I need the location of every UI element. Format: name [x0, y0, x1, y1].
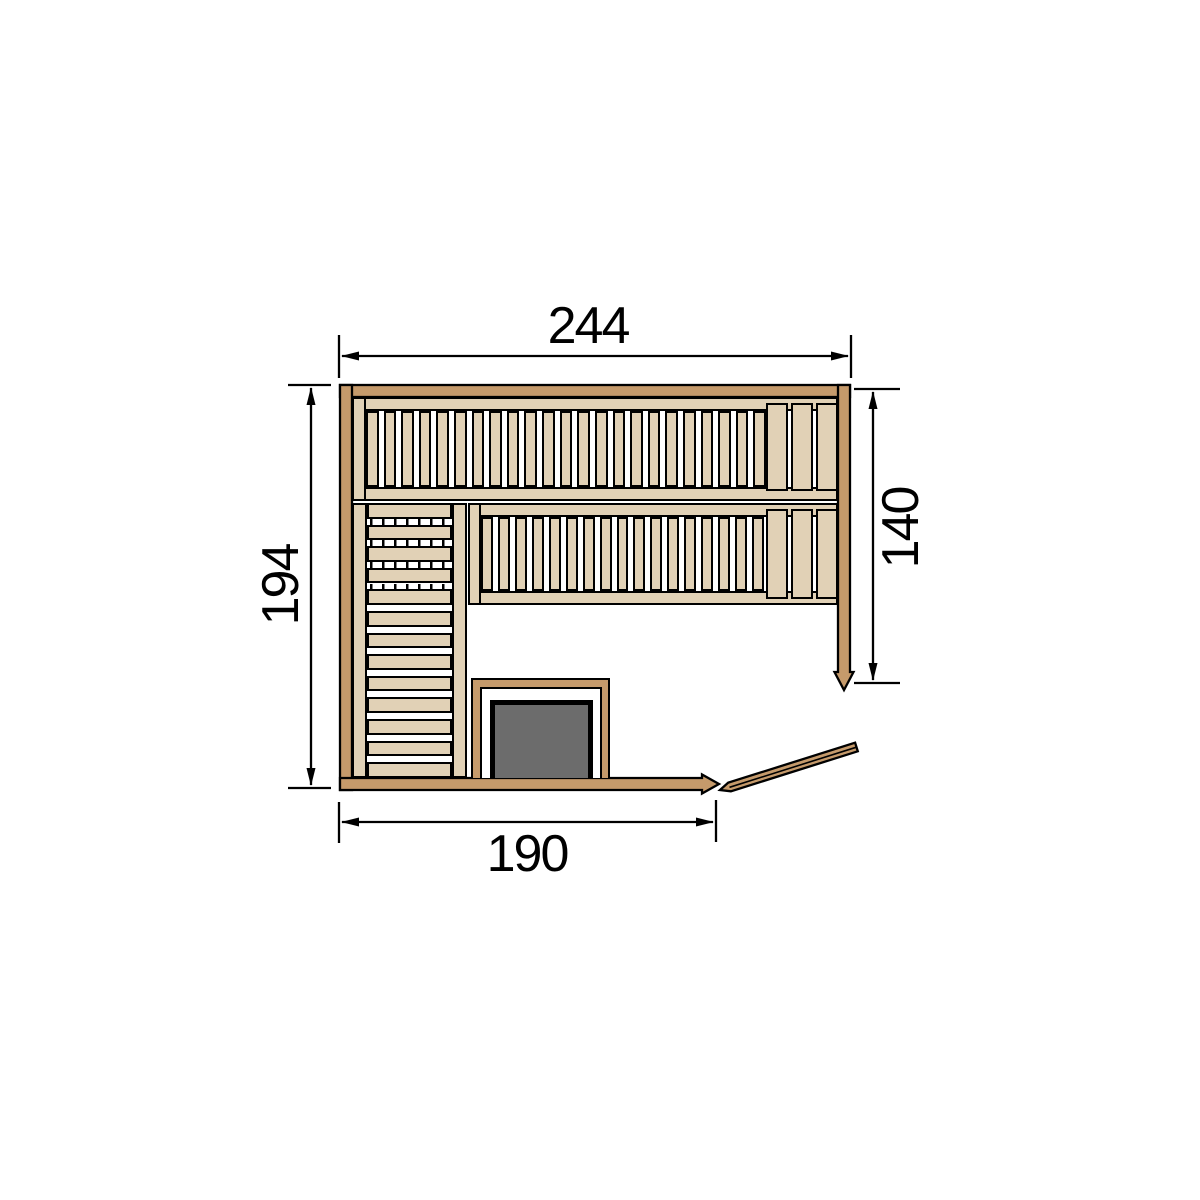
bench-slat: [532, 517, 544, 591]
bench-slat: [549, 517, 561, 591]
dashed-slat-gap: [370, 540, 449, 547]
dim-right-top-arrow: [869, 391, 878, 409]
dim-left-top-arrow: [307, 387, 316, 405]
left-bench-left-rail: [352, 503, 367, 778]
bench-slat: [701, 517, 713, 591]
headrest-plank: [766, 403, 788, 491]
dim-top-right-arrow: [831, 352, 849, 361]
left-bench-right-rail: [452, 503, 467, 778]
bench-slat: [419, 411, 432, 487]
upper-bench-headrest: [766, 403, 838, 491]
bench-slat: [367, 633, 452, 649]
lower-bench-slats: [481, 517, 764, 591]
bench-slat: [367, 654, 452, 670]
bench-slat: [633, 517, 645, 591]
bench-slat: [630, 411, 643, 487]
bench-slat: [367, 546, 452, 562]
bench-slat: [648, 411, 661, 487]
upper-bench-slats: [366, 411, 766, 487]
bench-slat: [752, 517, 764, 591]
bench-slat: [472, 411, 485, 487]
headrest-plank: [791, 509, 813, 599]
dim-height-right-label: 140: [873, 428, 929, 628]
bench-slat: [600, 517, 612, 591]
bench-slat: [577, 411, 590, 487]
stove: [490, 700, 593, 778]
dim-left-bottom-arrow: [307, 768, 316, 786]
bench-slat: [613, 411, 626, 487]
dashed-slat-gap: [370, 518, 449, 525]
dim-height-left-label: 194: [253, 485, 309, 685]
bench-slat: [753, 411, 766, 487]
dim-top-left-arrow: [341, 352, 359, 361]
dim-bottom-right-arrow: [696, 818, 714, 827]
bench-slat: [665, 411, 678, 487]
dim-width-top-label: 244: [488, 298, 688, 354]
dim-width-bottom-label: 190: [427, 826, 627, 882]
bench-slat: [367, 762, 452, 778]
bench-slat: [718, 517, 730, 591]
bench-slat: [367, 697, 452, 713]
bench-slat: [507, 411, 520, 487]
bench-slat: [367, 503, 452, 519]
bench-slat: [367, 719, 452, 735]
bench-slat: [683, 411, 696, 487]
bench-slat: [701, 411, 714, 487]
bench-slat: [481, 517, 493, 591]
bench-slat: [566, 517, 578, 591]
bench-slat: [401, 411, 414, 487]
lower-bench-headrest: [766, 509, 838, 599]
dim-right-bottom-arrow: [869, 663, 878, 681]
bench-slat: [650, 517, 662, 591]
bench-slat: [736, 411, 749, 487]
dashed-slat-gap: [370, 584, 449, 591]
bench-slat: [384, 411, 397, 487]
lower-bench-left-rail: [468, 503, 481, 605]
bench-slat: [684, 517, 696, 591]
bench-slat: [617, 517, 629, 591]
bench-slat: [595, 411, 608, 487]
bench-slat: [560, 411, 573, 487]
bench-slat: [515, 517, 527, 591]
bench-slat: [524, 411, 537, 487]
bench-slat: [498, 517, 510, 591]
bench-slat: [718, 411, 731, 487]
bench-slat: [489, 411, 502, 487]
door-leaf-seam: [730, 747, 857, 787]
bench-slat: [735, 517, 747, 591]
upper-bench-left-rail: [352, 397, 366, 501]
headrest-plank: [816, 509, 838, 599]
bench-slat: [367, 568, 452, 584]
headrest-plank: [791, 403, 813, 491]
dim-bottom-left-arrow: [341, 818, 359, 827]
bench-slat: [542, 411, 555, 487]
bench-slat: [367, 611, 452, 627]
bench-slat: [367, 525, 452, 541]
top-wall: [340, 385, 850, 397]
bench-slat: [366, 411, 379, 487]
headrest-plank: [766, 509, 788, 599]
bench-slat: [436, 411, 449, 487]
bench-slat: [367, 741, 452, 757]
headrest-plank: [816, 403, 838, 491]
left-wall: [340, 385, 352, 790]
dashed-slat-gap: [370, 562, 449, 569]
bench-slat: [367, 589, 452, 605]
bench-slat: [454, 411, 467, 487]
sauna-floor-plan-diagram: 244 194 140 190: [0, 0, 1200, 1200]
bench-slat: [583, 517, 595, 591]
bench-slat: [367, 676, 452, 692]
bench-slat: [667, 517, 679, 591]
